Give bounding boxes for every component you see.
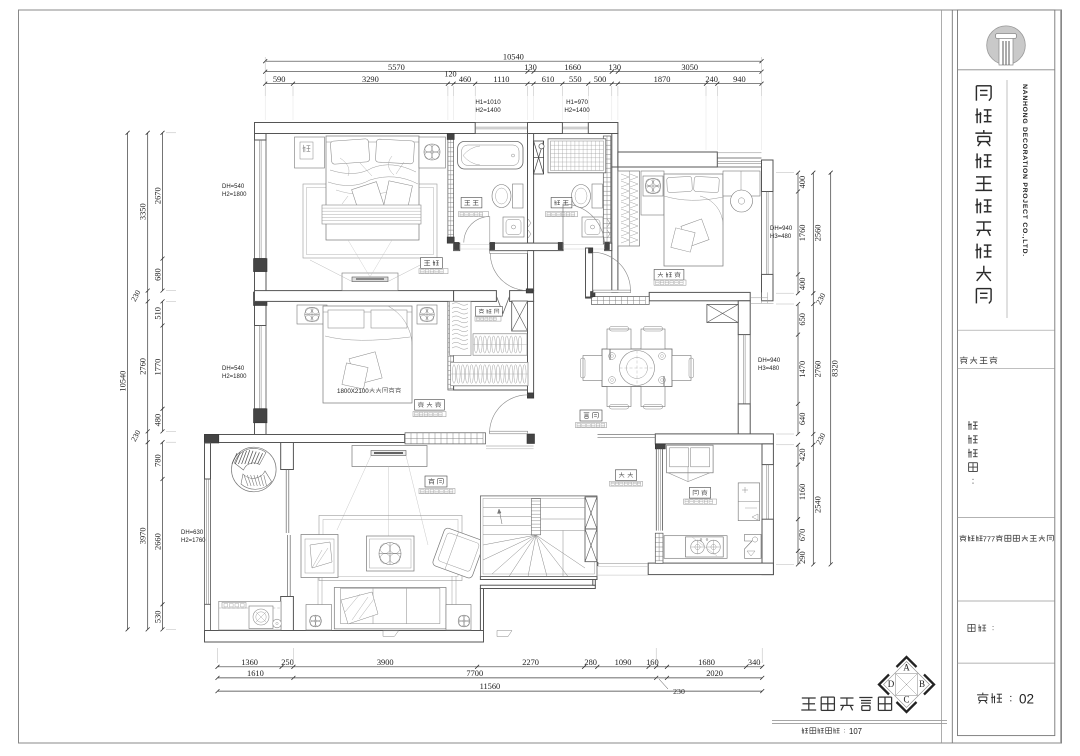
svg-text:DH=940: DH=940: [758, 358, 781, 364]
svg-text:120: 120: [444, 70, 456, 79]
svg-text:3350: 3350: [139, 203, 148, 220]
svg-text:670: 670: [798, 529, 807, 542]
svg-text:160: 160: [646, 658, 659, 667]
svg-text:2670: 2670: [154, 187, 163, 204]
svg-text:280: 280: [584, 658, 597, 667]
svg-text:H2=1400: H2=1400: [564, 107, 590, 114]
svg-text:B: B: [919, 679, 925, 689]
svg-text:3290: 3290: [362, 75, 379, 84]
svg-text:1160: 1160: [798, 484, 807, 500]
svg-text:02: 02: [1019, 692, 1034, 707]
svg-text:680: 680: [154, 268, 163, 281]
svg-text:DH=540: DH=540: [222, 184, 245, 190]
svg-text:2540: 2540: [813, 496, 822, 513]
svg-text:H2=1800: H2=1800: [222, 374, 247, 380]
svg-text:2760: 2760: [813, 361, 822, 378]
svg-text:640: 640: [798, 413, 807, 426]
svg-text:1800X2100: 1800X2100: [337, 388, 369, 395]
svg-text:10540: 10540: [503, 52, 524, 61]
svg-text:8320: 8320: [831, 360, 840, 377]
svg-text:5570: 5570: [388, 63, 405, 72]
svg-text:1760: 1760: [798, 225, 807, 242]
svg-text:DH=630: DH=630: [181, 530, 204, 536]
svg-text:590: 590: [273, 75, 286, 84]
svg-text:1610: 1610: [247, 669, 264, 678]
svg-text:340: 340: [748, 658, 761, 667]
svg-text:A: A: [903, 662, 910, 672]
svg-text:650: 650: [798, 313, 807, 326]
svg-text:480: 480: [154, 414, 163, 427]
svg-text:240: 240: [705, 75, 718, 84]
svg-text:H2=1760: H2=1760: [181, 538, 206, 544]
svg-text:11560: 11560: [480, 682, 501, 691]
svg-text:420: 420: [798, 448, 807, 461]
svg-text:400: 400: [798, 176, 807, 189]
svg-text:107: 107: [849, 727, 862, 736]
svg-text:2270: 2270: [522, 658, 539, 667]
svg-text:1660: 1660: [564, 63, 581, 72]
svg-text:1770: 1770: [154, 359, 163, 376]
svg-text:NANHONG DECORATION PROJECT CO.: NANHONG DECORATION PROJECT CO.,LTD.: [1021, 84, 1028, 257]
svg-text:130: 130: [524, 63, 537, 72]
svg-text:2560: 2560: [813, 225, 822, 242]
svg-text:777: 777: [983, 534, 995, 543]
svg-text:550: 550: [569, 75, 582, 84]
svg-text:7700: 7700: [466, 669, 483, 678]
svg-text:H2=1800: H2=1800: [222, 192, 247, 198]
svg-text:1090: 1090: [615, 658, 632, 667]
svg-text:DH=940: DH=940: [770, 226, 793, 232]
svg-text:510: 510: [154, 307, 163, 320]
svg-text:2660: 2660: [154, 533, 163, 550]
svg-text:250: 250: [281, 658, 294, 667]
svg-text:D: D: [888, 679, 895, 689]
svg-text:130: 130: [609, 63, 622, 72]
svg-text:1110: 1110: [493, 75, 509, 84]
svg-text:3050: 3050: [681, 63, 698, 72]
svg-text:3900: 3900: [377, 658, 394, 667]
svg-text:10540: 10540: [119, 371, 128, 392]
svg-text:400: 400: [798, 278, 807, 291]
svg-text:DH=540: DH=540: [222, 366, 245, 372]
svg-text:780: 780: [154, 454, 163, 467]
svg-text:C: C: [903, 695, 909, 705]
svg-text:610: 610: [542, 75, 555, 84]
svg-text:500: 500: [594, 75, 607, 84]
svg-text:2020: 2020: [706, 669, 723, 678]
svg-text:H1=970: H1=970: [566, 99, 588, 106]
svg-text:H3=480: H3=480: [758, 366, 780, 372]
svg-text:290: 290: [798, 551, 807, 564]
svg-text:1470: 1470: [798, 361, 807, 378]
svg-text:530: 530: [154, 611, 163, 624]
svg-text:H1=1010: H1=1010: [475, 99, 501, 106]
svg-text:2760: 2760: [139, 358, 148, 375]
svg-text:1680: 1680: [698, 658, 715, 667]
svg-text:3970: 3970: [139, 527, 148, 544]
svg-text:940: 940: [733, 75, 746, 84]
svg-text:H2=1400: H2=1400: [475, 107, 501, 114]
svg-text:1360: 1360: [241, 658, 258, 667]
svg-text:460: 460: [459, 75, 471, 84]
svg-text:230: 230: [673, 687, 685, 696]
svg-text:1870: 1870: [654, 75, 671, 84]
